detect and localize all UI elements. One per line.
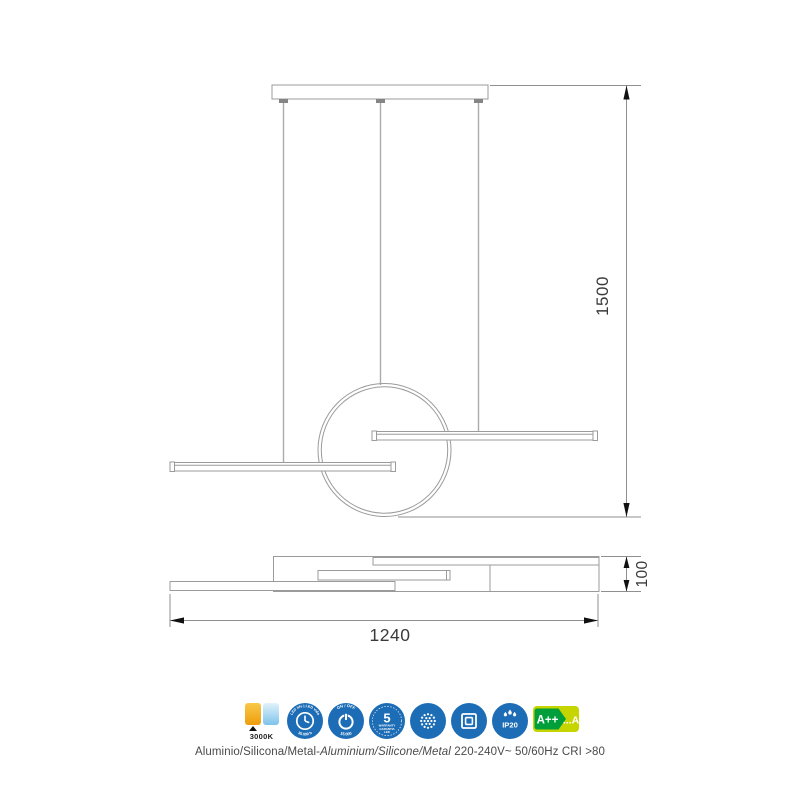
ip20-label: IP20	[502, 720, 518, 729]
top-view-bar-right	[373, 558, 599, 566]
energy-rating-badge: A++ ...A	[533, 706, 579, 732]
warranty-line3: LED	[384, 730, 390, 734]
electrical-spec-text: 220-240V~ 50/60Hz CRI >80	[451, 746, 605, 758]
dimension-depth-label: 100	[634, 560, 651, 587]
arrowhead-down	[624, 580, 630, 592]
arrowhead-down	[623, 503, 629, 517]
materials-es-text: Aluminio/Silicona/Metal-	[195, 746, 320, 758]
dimension-width-label: 1240	[370, 625, 411, 645]
top-view-bar-left	[170, 582, 395, 591]
top-view	[170, 557, 599, 592]
class-ii-icon	[451, 703, 487, 739]
color-temperature-icon: 3000K	[242, 703, 282, 741]
light-bar-left	[170, 462, 396, 472]
dimension-depth: 100	[601, 557, 651, 592]
arrowhead-left	[170, 617, 184, 623]
spec-sheet-page: 1500 100 1240	[0, 0, 800, 800]
materials-en-text: Aluminium/Silicone/Metal	[320, 746, 451, 758]
dimension-height-label: 1500	[593, 276, 612, 316]
cable-fitting	[474, 99, 483, 103]
arrowhead-up	[623, 86, 629, 100]
warranty-icon: 5 WARRANTY GARANTIA LED	[369, 703, 405, 739]
dimension-height: 1500	[398, 86, 641, 518]
led-chip-icon	[410, 703, 446, 739]
arrowhead-right	[584, 617, 598, 623]
energy-range-label: ...A	[562, 715, 578, 727]
arrowhead-up	[624, 557, 630, 569]
spec-caption: Aluminio/Silicona/Metal-Aluminium/Silico…	[0, 746, 800, 758]
cool-light-bar	[263, 703, 279, 725]
led-ring	[318, 384, 451, 517]
on-off-cycles-icon: ON / OFF 15.000	[328, 703, 364, 739]
cable-fitting	[376, 99, 385, 103]
top-view-bar-middle	[318, 571, 450, 581]
ceiling-canopy	[272, 85, 488, 103]
ip20-icon: IP20	[492, 703, 528, 739]
led-life-icon: LED life | LED vida 35.000 h	[287, 703, 323, 739]
warm-light-bar	[245, 703, 261, 725]
temperature-marker-icon	[249, 726, 257, 731]
color-temperature-label: 3000K	[250, 732, 274, 741]
dimension-width: 1240	[170, 594, 598, 645]
feature-icons-row: 3000K LED life | LED vida 35.000 h	[0, 703, 800, 741]
technical-drawing: 1500 100 1240	[0, 0, 800, 690]
energy-best-label: A++	[536, 715, 558, 727]
cable-fitting	[279, 99, 288, 103]
light-bar-right	[372, 431, 598, 441]
